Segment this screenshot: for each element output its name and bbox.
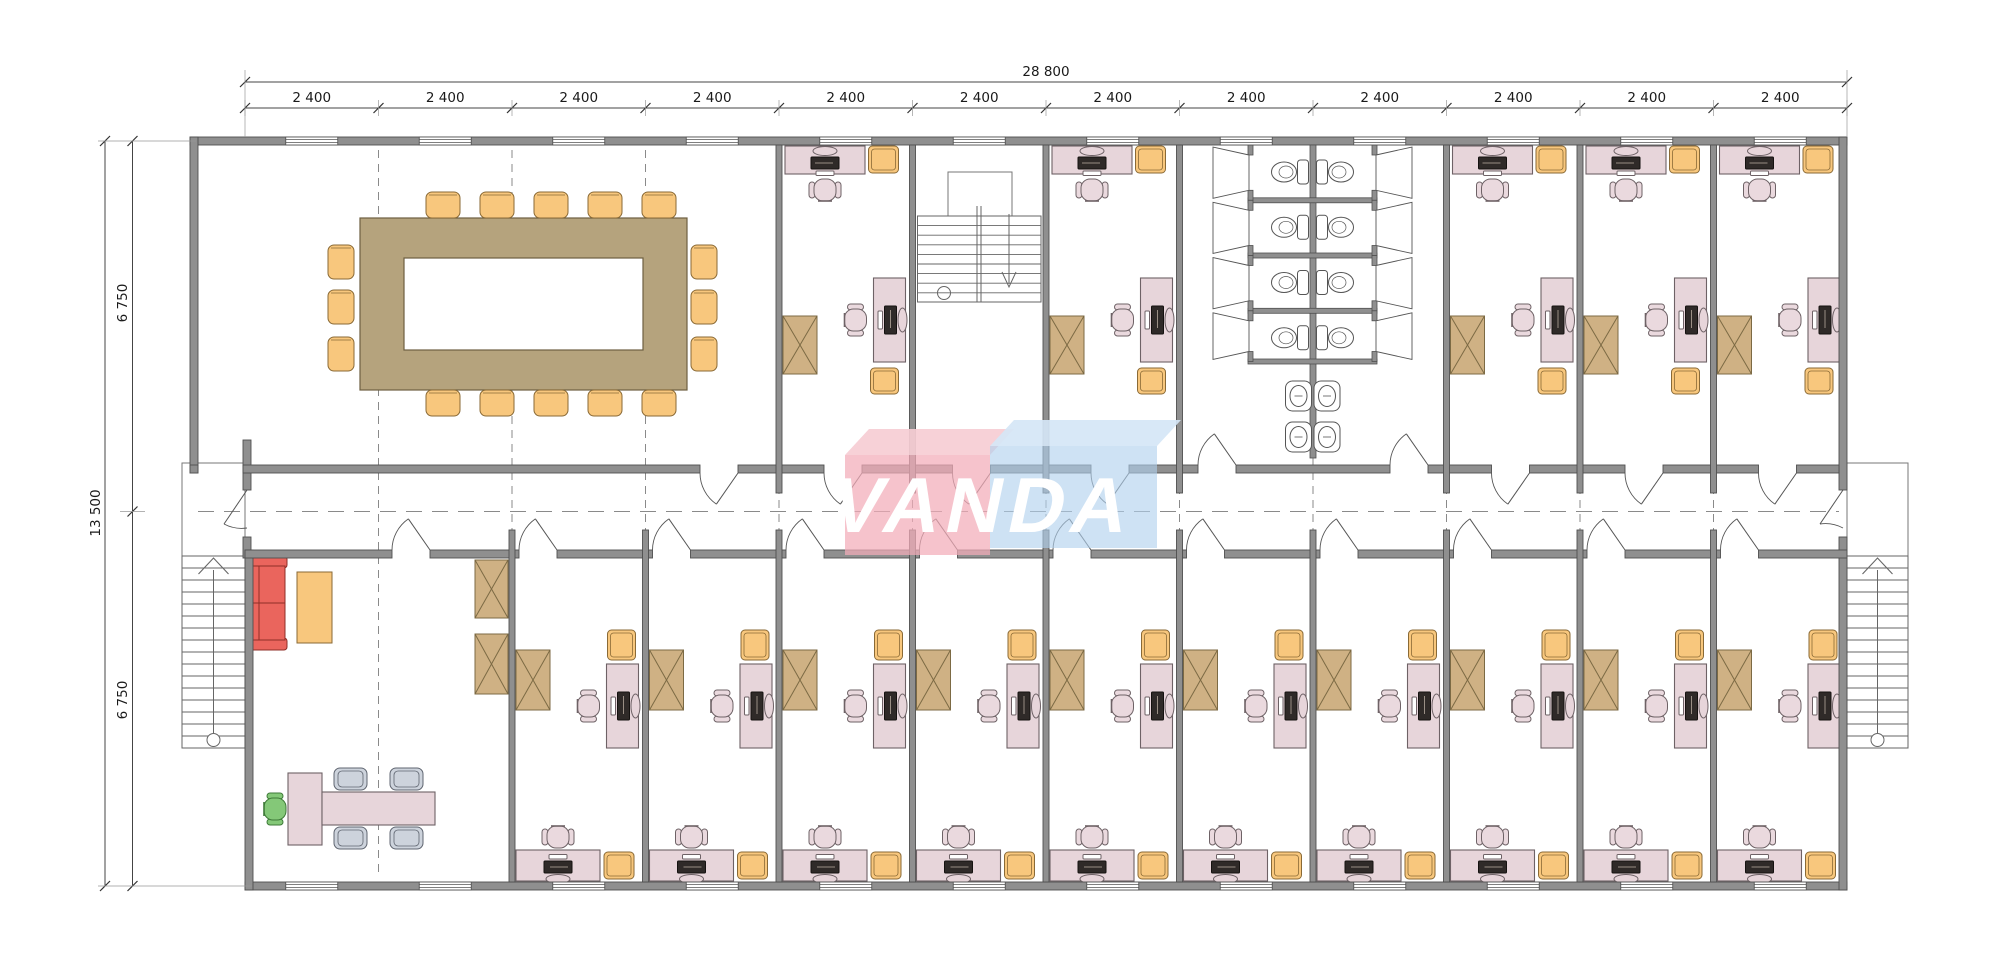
office-bottom-10 bbox=[1718, 630, 1842, 884]
office-bottom-9 bbox=[1584, 630, 1708, 884]
window bbox=[686, 137, 738, 145]
window bbox=[1487, 137, 1539, 145]
vanda-watermark: VANDA bbox=[824, 420, 1181, 555]
logo-box-pink-top bbox=[845, 429, 1014, 455]
exterior-stair-right bbox=[1847, 556, 1908, 748]
visitor-chair bbox=[334, 768, 367, 790]
armchair bbox=[1539, 852, 1569, 879]
task-chair bbox=[1379, 690, 1401, 722]
window bbox=[1354, 137, 1406, 145]
stall-door bbox=[1376, 202, 1412, 253]
washbasin bbox=[1286, 422, 1312, 452]
door bbox=[1587, 519, 1625, 550]
visitor-chair bbox=[390, 827, 423, 849]
visitor-chair bbox=[390, 768, 423, 790]
door bbox=[1820, 490, 1843, 528]
wardrobe-cabinet bbox=[1184, 650, 1218, 710]
task-chair bbox=[1477, 826, 1509, 848]
task-chair bbox=[264, 793, 286, 825]
task-chair bbox=[943, 826, 975, 848]
wardrobe-cabinet bbox=[1451, 316, 1485, 374]
office-top-3 bbox=[1451, 146, 1575, 394]
conference-chair bbox=[691, 290, 717, 324]
task-chair bbox=[1512, 690, 1534, 722]
armchair bbox=[875, 630, 903, 660]
window bbox=[286, 137, 338, 145]
armchair bbox=[1806, 852, 1836, 879]
armchair bbox=[871, 852, 901, 879]
task-chair bbox=[1779, 304, 1801, 336]
conference-chair bbox=[691, 337, 717, 371]
stall-door bbox=[1213, 202, 1249, 253]
dim-half-height-label: 6 750 bbox=[115, 284, 131, 323]
dim-module-label: 2 400 bbox=[426, 90, 465, 106]
washbasin bbox=[1286, 381, 1312, 411]
window bbox=[1621, 882, 1673, 890]
office-top-2 bbox=[1050, 146, 1174, 394]
task-chair bbox=[1076, 179, 1108, 201]
sofa bbox=[249, 556, 287, 650]
dim-overall-height-label: 13 500 bbox=[88, 489, 104, 536]
visitor-chair bbox=[334, 827, 367, 849]
floor-plan-page: 28 8002 4002 4002 4002 4002 4002 4002 40… bbox=[0, 0, 2000, 980]
armchair bbox=[1676, 630, 1704, 660]
washbasin bbox=[1314, 381, 1340, 411]
door bbox=[700, 473, 738, 504]
dim-module-label: 2 400 bbox=[693, 90, 732, 106]
washbasin bbox=[1314, 422, 1340, 452]
office-bottom-6 bbox=[1184, 630, 1308, 884]
wardrobe-cabinet bbox=[516, 650, 550, 710]
coffee-table bbox=[297, 572, 332, 643]
entry-porch-right bbox=[1847, 463, 1908, 556]
task-chair bbox=[845, 690, 867, 722]
task-chair bbox=[809, 826, 841, 848]
window bbox=[553, 882, 605, 890]
window bbox=[953, 137, 1005, 145]
conference-chair bbox=[480, 390, 514, 416]
office-top-5 bbox=[1718, 146, 1842, 394]
armchair bbox=[1138, 368, 1166, 394]
task-chair bbox=[1779, 690, 1801, 722]
door bbox=[1759, 473, 1797, 504]
office-bottom-5 bbox=[1050, 630, 1174, 884]
task-chair bbox=[1646, 690, 1668, 722]
armchair bbox=[1138, 852, 1168, 879]
conference-chair bbox=[642, 192, 676, 218]
armchair bbox=[1809, 630, 1837, 660]
conference-table bbox=[360, 218, 687, 390]
dim-module-label: 2 400 bbox=[960, 90, 999, 106]
wardrobe-cabinet bbox=[1718, 316, 1752, 374]
wardrobe-cabinet bbox=[917, 650, 951, 710]
door bbox=[224, 490, 247, 528]
dim-module-label: 2 400 bbox=[1360, 90, 1399, 106]
armchair bbox=[1542, 630, 1570, 660]
stall-door bbox=[1376, 147, 1412, 198]
task-chair bbox=[809, 179, 841, 201]
stall-door bbox=[1376, 313, 1412, 360]
dim-module-label: 2 400 bbox=[559, 90, 598, 106]
stair-hall bbox=[918, 172, 1042, 302]
window bbox=[419, 882, 471, 890]
executive-office bbox=[246, 556, 508, 849]
window bbox=[286, 882, 338, 890]
door bbox=[392, 519, 430, 550]
window bbox=[1354, 882, 1406, 890]
armchair bbox=[738, 852, 768, 879]
logo-text-wrap: VANDA bbox=[824, 462, 1144, 549]
task-chair bbox=[1112, 690, 1134, 722]
armchair bbox=[1805, 368, 1833, 394]
office-bottom-7 bbox=[1317, 630, 1441, 884]
door bbox=[1198, 434, 1236, 465]
toilet bbox=[1317, 160, 1354, 184]
armchair bbox=[869, 146, 899, 173]
conference-chair bbox=[328, 245, 354, 279]
dim-module-label: 2 400 bbox=[292, 90, 331, 106]
task-chair bbox=[1744, 826, 1776, 848]
floor-plan-drawing: 28 8002 4002 4002 4002 4002 4002 4002 40… bbox=[0, 0, 2000, 980]
armchair bbox=[1136, 146, 1166, 173]
wardrobe-cabinet bbox=[1050, 316, 1084, 374]
task-chair bbox=[1646, 304, 1668, 336]
wardrobe-cabinet bbox=[475, 560, 508, 618]
conference-chair bbox=[426, 390, 460, 416]
office-bottom-3 bbox=[783, 630, 907, 884]
dim-module-label: 2 400 bbox=[826, 90, 865, 106]
window bbox=[1087, 137, 1139, 145]
task-chair bbox=[1610, 179, 1642, 201]
task-chair bbox=[1477, 179, 1509, 201]
task-chair bbox=[1245, 690, 1267, 722]
wardrobe-cabinet bbox=[1050, 650, 1084, 710]
window bbox=[1220, 137, 1272, 145]
armchair bbox=[871, 368, 899, 394]
door bbox=[1721, 519, 1759, 550]
washroom bbox=[1213, 145, 1412, 458]
task-chair bbox=[1512, 304, 1534, 336]
armchair bbox=[1670, 146, 1700, 173]
toilet bbox=[1317, 326, 1354, 350]
task-chair bbox=[1744, 179, 1776, 201]
internal-stairs bbox=[918, 172, 1042, 302]
window bbox=[820, 882, 872, 890]
stall-door bbox=[1376, 258, 1412, 309]
wardrobe-cabinet bbox=[1584, 316, 1618, 374]
door bbox=[1390, 434, 1428, 465]
office-top-4 bbox=[1584, 146, 1708, 394]
conference-chair bbox=[328, 290, 354, 324]
window bbox=[419, 137, 471, 145]
door bbox=[1625, 473, 1663, 504]
armchair bbox=[1672, 852, 1702, 879]
stall-door bbox=[1213, 147, 1249, 198]
toilet bbox=[1317, 271, 1354, 295]
exterior-stair-left bbox=[182, 556, 245, 748]
wardrobe-cabinet bbox=[1718, 650, 1752, 710]
door bbox=[1454, 519, 1492, 550]
task-chair bbox=[1210, 826, 1242, 848]
door bbox=[1320, 519, 1358, 550]
window bbox=[1087, 882, 1139, 890]
armchair bbox=[608, 630, 636, 660]
conference-room bbox=[328, 192, 717, 416]
task-chair bbox=[542, 826, 574, 848]
toilet bbox=[1317, 215, 1354, 239]
office-bottom-4 bbox=[917, 630, 1041, 884]
door bbox=[786, 519, 824, 550]
task-chair bbox=[578, 690, 600, 722]
armchair bbox=[1272, 852, 1302, 879]
dim-module-label: 2 400 bbox=[1494, 90, 1533, 106]
window bbox=[553, 137, 605, 145]
wardrobe-cabinet bbox=[650, 650, 684, 710]
armchair bbox=[741, 630, 769, 660]
office-top-1 bbox=[783, 146, 907, 394]
armchair bbox=[1405, 852, 1435, 879]
wardrobe-cabinet bbox=[1317, 650, 1351, 710]
window bbox=[1754, 882, 1806, 890]
toilet bbox=[1272, 326, 1309, 350]
task-chair bbox=[711, 690, 733, 722]
armchair bbox=[1005, 852, 1035, 879]
door bbox=[519, 519, 557, 550]
dim-module-label: 2 400 bbox=[1761, 90, 1800, 106]
dim-half-height-label: 6 750 bbox=[115, 681, 131, 720]
armchair bbox=[604, 852, 634, 879]
dim-module-label: 2 400 bbox=[1093, 90, 1132, 106]
armchair bbox=[1538, 368, 1566, 394]
task-chair bbox=[978, 690, 1000, 722]
window bbox=[1220, 882, 1272, 890]
toilet bbox=[1272, 160, 1309, 184]
task-chair bbox=[676, 826, 708, 848]
wardrobe-cabinet bbox=[1584, 650, 1618, 710]
wardrobe-cabinet bbox=[783, 316, 817, 374]
conference-chair bbox=[480, 192, 514, 218]
window bbox=[1487, 882, 1539, 890]
entry-porch-left bbox=[182, 463, 245, 556]
wardrobe-cabinet bbox=[475, 634, 508, 694]
armchair bbox=[1672, 368, 1700, 394]
wardrobe-cabinet bbox=[783, 650, 817, 710]
vanda-watermark-text: VANDA bbox=[824, 462, 1144, 549]
window bbox=[953, 882, 1005, 890]
conference-chair bbox=[691, 245, 717, 279]
conference-chair bbox=[328, 337, 354, 371]
task-chair bbox=[1610, 826, 1642, 848]
conference-chair bbox=[426, 192, 460, 218]
armchair bbox=[1536, 146, 1566, 173]
toilet bbox=[1272, 271, 1309, 295]
conference-chair bbox=[534, 192, 568, 218]
door bbox=[653, 519, 691, 550]
window bbox=[686, 882, 738, 890]
office-bottom-2 bbox=[650, 630, 774, 884]
conference-chair bbox=[588, 390, 622, 416]
task-chair bbox=[845, 304, 867, 336]
office-bottom-1 bbox=[516, 630, 640, 884]
dim-module-label: 2 400 bbox=[1627, 90, 1666, 106]
conference-chair bbox=[642, 390, 676, 416]
armchair bbox=[1008, 630, 1036, 660]
dim-total-width-label: 28 800 bbox=[1022, 64, 1069, 80]
window bbox=[1754, 137, 1806, 145]
window bbox=[820, 137, 872, 145]
task-chair bbox=[1112, 304, 1134, 336]
stall-door bbox=[1213, 258, 1249, 309]
logo-box-blue-top bbox=[990, 420, 1181, 446]
task-chair bbox=[1343, 826, 1375, 848]
task-chair bbox=[1076, 826, 1108, 848]
conference-chair bbox=[534, 390, 568, 416]
wardrobe-cabinet bbox=[1451, 650, 1485, 710]
door bbox=[1492, 473, 1530, 504]
conference-chair bbox=[588, 192, 622, 218]
armchair bbox=[1142, 630, 1170, 660]
armchair bbox=[1275, 630, 1303, 660]
armchair bbox=[1803, 146, 1833, 173]
dim-module-label: 2 400 bbox=[1227, 90, 1266, 106]
office-bottom-8 bbox=[1451, 630, 1575, 884]
window bbox=[1621, 137, 1673, 145]
door bbox=[1187, 519, 1225, 550]
armchair bbox=[1409, 630, 1437, 660]
stall-door bbox=[1213, 313, 1249, 360]
toilet bbox=[1272, 215, 1309, 239]
